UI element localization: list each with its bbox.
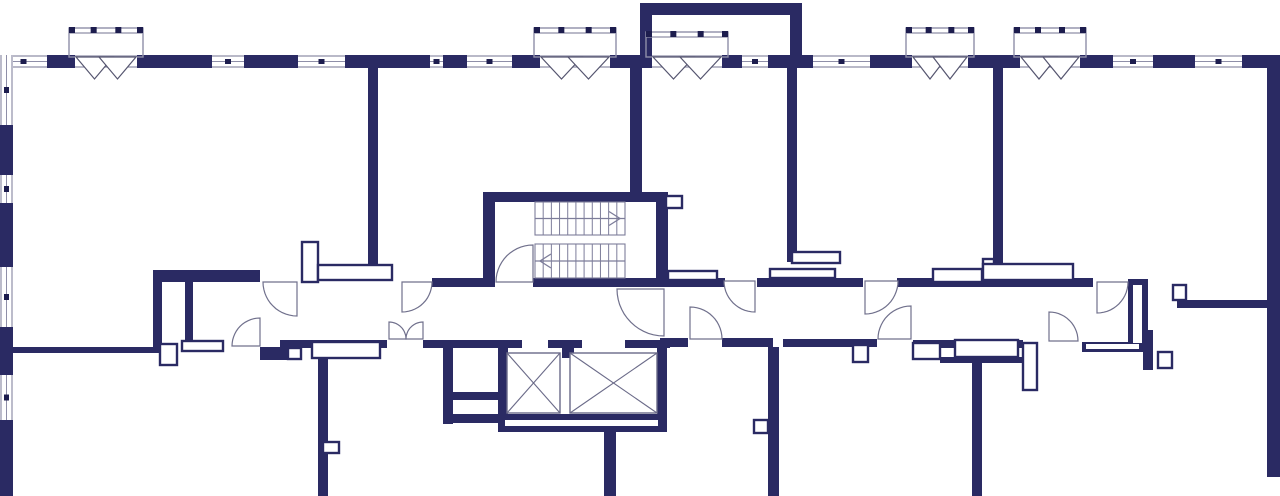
fixtures-layer [160,196,1186,453]
floor-plan-canvas [0,0,1280,496]
elevators-group [507,353,657,413]
floor-plan [0,0,1280,496]
balconies-layer [69,27,1086,79]
stairs-group [535,202,625,278]
